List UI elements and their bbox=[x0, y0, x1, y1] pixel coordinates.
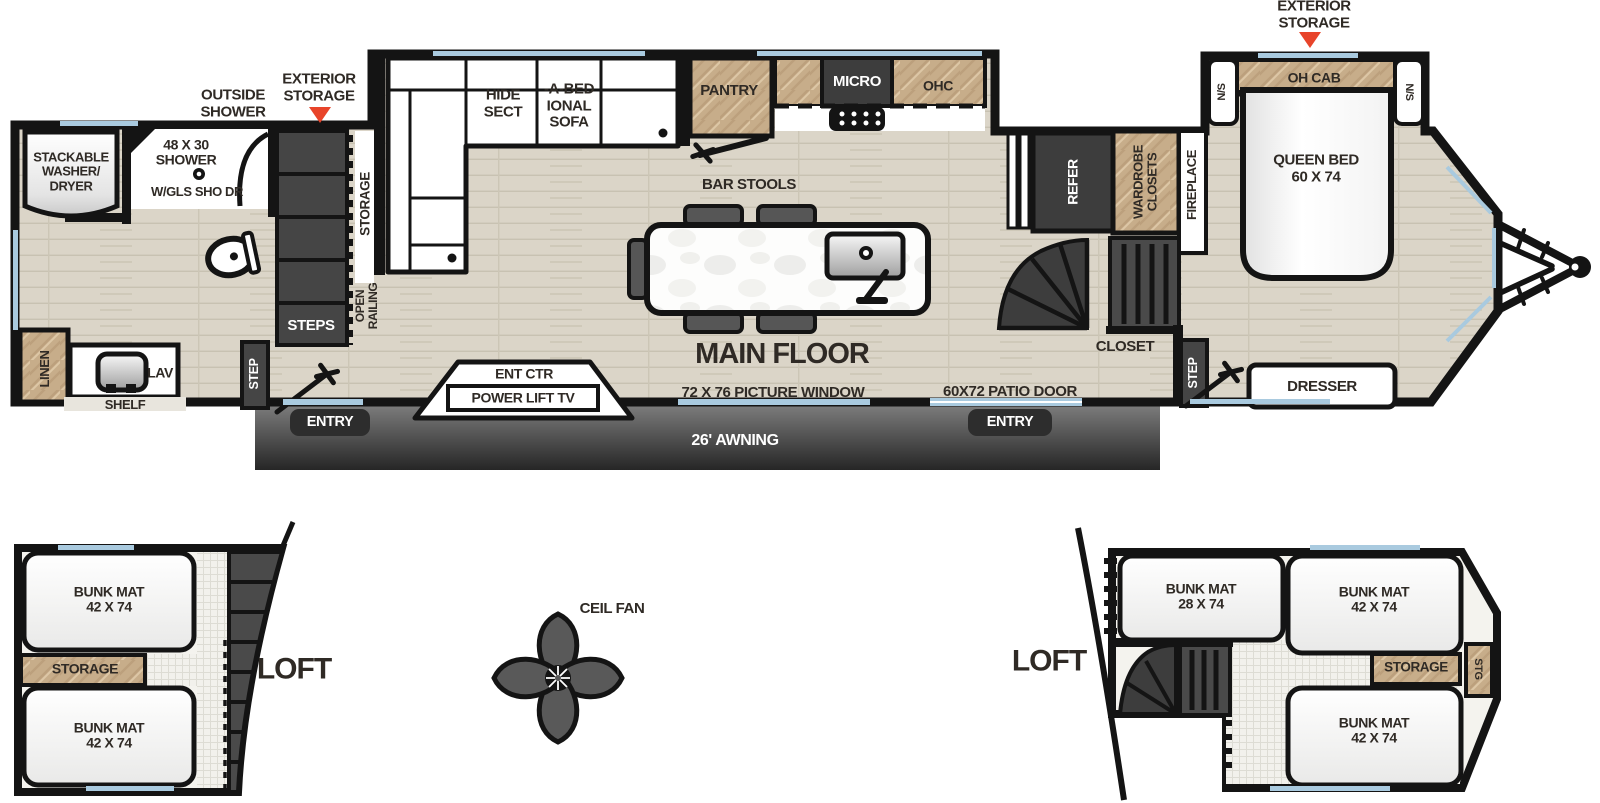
oh-cab-label: OH CAB bbox=[1288, 70, 1341, 85]
entry-right-label: ENTRY bbox=[987, 415, 1034, 431]
bunk-right-bottom-label: BUNK MAT42 X 74 bbox=[1339, 716, 1409, 747]
washer-dryer-label: STACKABLE WASHER/ DRYER bbox=[33, 151, 109, 194]
wardrobe-label: WARDROBECLOSETS bbox=[1132, 145, 1161, 219]
bar-stools-label: BAR STOOLS bbox=[702, 177, 796, 194]
loft-left bbox=[18, 522, 293, 792]
step-left-label: STEP bbox=[248, 358, 262, 389]
shelf-label: SHELF bbox=[105, 398, 146, 412]
micro-label: MICRO bbox=[833, 74, 881, 91]
rv-floorplan: OUTSIDESHOWER EXTERIORSTORAGE EXTERIORST… bbox=[0, 0, 1600, 803]
trailer-hitch bbox=[1498, 224, 1591, 310]
bunk-left-bottom-label: BUNK MAT42 X 74 bbox=[74, 721, 144, 752]
entry-left-label: ENTRY bbox=[307, 415, 354, 431]
sofa-label-right: -A-BEDIONALSOFA bbox=[544, 81, 594, 131]
loft-left-storage-label: STORAGE bbox=[52, 661, 118, 676]
exterior-storage-arrow-front bbox=[1299, 32, 1321, 48]
linen-label: LINEN bbox=[38, 350, 52, 387]
main-floor-title: MAIN FLOOR bbox=[695, 339, 869, 371]
pantry-label: PANTRY bbox=[700, 83, 758, 100]
step-right-label: STEP bbox=[1187, 357, 1201, 388]
ohc-label: OHC bbox=[923, 78, 953, 93]
exterior-storage-rear-callout: EXTERIORSTORAGE bbox=[282, 72, 355, 105]
storage-vertical-label: STORAGE bbox=[359, 172, 374, 236]
refer-label: REFER bbox=[1065, 159, 1080, 204]
exterior-storage-front-callout: EXTERIORSTORAGE bbox=[1277, 0, 1350, 32]
outside-shower-callout: OUTSIDESHOWER bbox=[200, 88, 265, 121]
ceil-fan-label: CEIL FAN bbox=[580, 601, 645, 618]
stg-label: STG bbox=[1472, 658, 1484, 679]
lav-sink-icon bbox=[98, 354, 146, 393]
ceiling-fan-icon bbox=[494, 614, 622, 742]
lav-label: LAV bbox=[147, 365, 173, 380]
shower-door-label: W/GLS SHO DR bbox=[151, 185, 243, 199]
patio-door-label: 60X72 PATIO DOOR bbox=[943, 384, 1077, 401]
bunk-left-top-label: BUNK MAT42 X 74 bbox=[74, 585, 144, 616]
power-lift-tv-label: POWER LIFT TV bbox=[472, 390, 575, 405]
kitchen-island bbox=[629, 206, 928, 332]
fireplace-label: FIREPLACE bbox=[1185, 150, 1199, 220]
sofa-label-left: HIDESECT bbox=[484, 88, 522, 121]
cooktop-icon bbox=[829, 107, 885, 131]
loft-right-title: LOFT bbox=[1012, 645, 1086, 678]
steps-label: STEPS bbox=[287, 318, 334, 335]
bunk-right-side-label: BUNK MAT28 X 74 bbox=[1166, 582, 1236, 613]
straight-stairs bbox=[1110, 238, 1179, 330]
ns-left-label: N/S bbox=[1216, 83, 1228, 100]
ent-ctr-label: ENT CTR bbox=[495, 366, 553, 381]
ns-right-label: N/S bbox=[1403, 83, 1415, 100]
rear-steps bbox=[277, 131, 347, 345]
picture-window-label: 72 X 76 PICTURE WINDOW bbox=[682, 385, 865, 402]
shower-label: 48 X 30SHOWER bbox=[156, 138, 217, 169]
closet-label: CLOSET bbox=[1096, 339, 1154, 356]
open-railing-label: OPENRAILING bbox=[354, 283, 380, 330]
dresser-label: DRESSER bbox=[1287, 379, 1357, 396]
loft-left-title: LOFT bbox=[257, 653, 331, 686]
loft-right-storage-label: STORAGE bbox=[1384, 661, 1448, 676]
queen-bed-label: QUEEN BED60 X 74 bbox=[1273, 153, 1359, 186]
awning-label: 26' AWNING bbox=[691, 432, 778, 450]
bunk-right-top-label: BUNK MAT42 X 74 bbox=[1339, 585, 1409, 616]
